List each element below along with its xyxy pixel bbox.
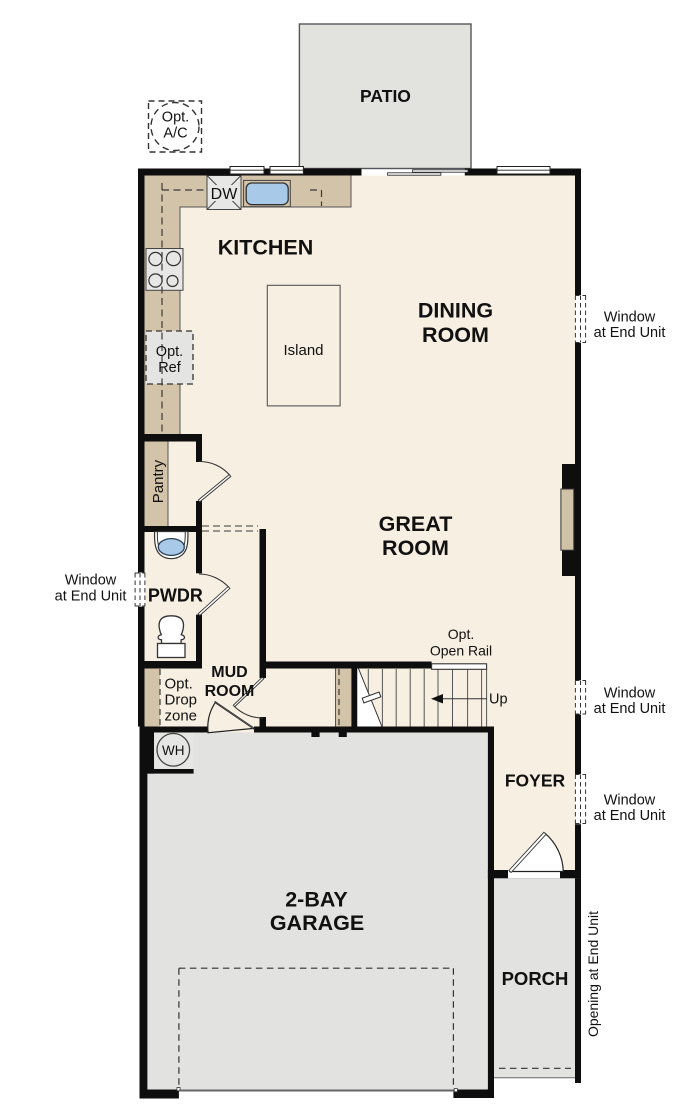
svg-text:A/C: A/C [163,126,187,142]
svg-text:PORCH: PORCH [502,968,569,989]
svg-text:at End Unit: at End Unit [594,325,666,341]
svg-text:2-BAY: 2-BAY [285,888,348,912]
svg-text:at End Unit: at End Unit [594,808,666,824]
svg-text:Opt.: Opt. [165,676,193,693]
svg-text:GARAGE: GARAGE [270,911,364,935]
svg-text:KITCHEN: KITCHEN [218,236,314,260]
svg-text:FOYER: FOYER [505,771,566,791]
svg-text:Opt.: Opt. [448,626,474,642]
svg-text:MUD: MUD [211,664,247,681]
svg-text:Opt.: Opt. [162,110,189,126]
svg-text:WH: WH [162,743,185,758]
svg-text:Pantry: Pantry [150,459,167,503]
svg-text:ROOM: ROOM [382,536,449,560]
svg-text:DW: DW [211,186,239,203]
svg-text:Window: Window [604,793,656,809]
svg-text:DINING: DINING [418,299,493,323]
svg-text:ROOM: ROOM [422,323,489,347]
svg-text:PWDR: PWDR [148,586,203,606]
svg-text:Window: Window [65,573,117,589]
svg-text:PATIO: PATIO [360,86,411,106]
svg-text:at End Unit: at End Unit [594,701,666,717]
svg-text:Drop: Drop [165,692,198,709]
svg-text:Window: Window [604,310,656,326]
svg-text:at End Unit: at End Unit [55,589,127,605]
svg-text:Open Rail: Open Rail [430,643,492,659]
svg-text:Opt.: Opt. [156,344,183,360]
svg-text:zone: zone [165,708,198,725]
svg-text:Up: Up [489,691,508,707]
svg-text:GREAT: GREAT [379,512,453,536]
svg-text:Opening at End Unit: Opening at End Unit [585,911,601,1037]
svg-text:Window: Window [604,686,656,702]
svg-text:Island: Island [283,342,323,359]
svg-text:ROOM: ROOM [205,683,255,700]
svg-text:Ref: Ref [158,360,182,376]
